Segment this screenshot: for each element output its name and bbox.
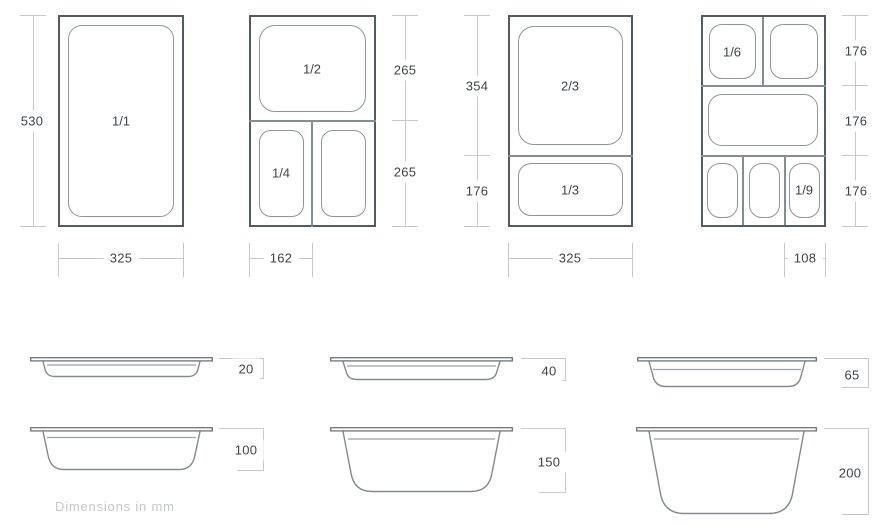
pan-size-label: 1/3	[561, 184, 579, 197]
dimension-tick	[183, 243, 184, 277]
frame-divider	[742, 157, 744, 225]
gastronorm-size-diagram: 1/1 530 325 1/2 1/4 265 265 162	[0, 0, 885, 526]
dimension-label: 325	[104, 248, 139, 269]
dimension-tick	[842, 226, 868, 227]
dimension-tick	[464, 155, 490, 156]
pan-outline-1-9b	[749, 163, 780, 218]
dimension-label: 265	[388, 60, 423, 81]
dimension-tick	[842, 15, 868, 16]
dimension-tick	[784, 243, 785, 277]
dimension-tick	[842, 85, 868, 86]
pan-profile	[330, 427, 513, 494]
dimension-label: 176	[839, 41, 874, 62]
dimension-tick	[508, 243, 509, 277]
depth-label: 100	[229, 440, 264, 461]
dimension-tick	[392, 15, 418, 16]
pan-outline-1-3-horizontal	[708, 94, 818, 146]
dimension-line	[405, 15, 406, 227]
dimension-tick	[464, 226, 490, 227]
depth-label: 150	[532, 452, 567, 473]
units-note: Dimensions in mm	[55, 499, 175, 514]
dimension-label: 176	[839, 111, 874, 132]
dimension-line	[263, 358, 264, 379]
dimension-label: 530	[15, 111, 50, 132]
dimension-line	[521, 358, 565, 359]
pan-size-label: 1/4	[272, 167, 290, 180]
dimension-tick	[249, 243, 250, 277]
depth-label: 200	[833, 463, 868, 484]
dimension-tick	[539, 492, 565, 493]
pan-outline-1-6b	[770, 24, 818, 79]
dimension-tick	[464, 15, 490, 16]
dimension-tick	[842, 514, 868, 515]
pan-profile	[637, 357, 817, 389]
frame-divider	[762, 17, 764, 85]
pan-profile	[636, 427, 817, 516]
dimension-line	[824, 358, 868, 359]
dimension-line	[824, 428, 868, 429]
frame-divider	[701, 85, 826, 87]
dimension-tick	[312, 243, 313, 277]
dimension-tick	[842, 387, 868, 388]
dimension-label: 325	[553, 248, 588, 269]
dimension-tick	[842, 155, 868, 156]
frame-divider	[311, 121, 313, 227]
dimension-tick	[825, 243, 826, 277]
depth-label: 40	[535, 361, 562, 382]
dimension-line	[219, 428, 263, 429]
depth-label: 65	[838, 365, 865, 386]
frame-divider	[701, 155, 826, 157]
depth-label: 20	[232, 359, 259, 380]
dimension-tick	[392, 120, 418, 121]
dimension-label: 176	[460, 181, 495, 202]
pan-size-label: 1/6	[723, 46, 741, 59]
pan-outline-1-4b	[321, 130, 366, 217]
dimension-tick	[20, 226, 46, 227]
frame-divider	[784, 157, 786, 225]
pan-size-label: 2/3	[561, 80, 579, 93]
dimension-label: 162	[264, 248, 299, 269]
dimension-tick	[632, 243, 633, 277]
dimension-tick	[58, 243, 59, 277]
frame-divider	[508, 155, 633, 157]
dimension-tick	[237, 470, 263, 471]
dimension-label: 108	[788, 248, 823, 269]
dimension-line	[521, 428, 565, 429]
dimension-label: 354	[460, 76, 495, 97]
pan-profile	[30, 427, 213, 472]
pan-profile	[30, 357, 213, 379]
dimension-label: 265	[388, 162, 423, 183]
pan-size-label: 1/2	[303, 63, 321, 76]
dimension-tick	[20, 15, 46, 16]
pan-outline-1-9	[707, 163, 738, 218]
dimension-label: 176	[839, 181, 874, 202]
pan-size-label: 1/9	[795, 184, 813, 197]
dimension-line	[565, 358, 566, 381]
pan-size-label: 1/1	[112, 115, 130, 128]
pan-profile	[330, 357, 513, 382]
dimension-line	[868, 428, 869, 515]
dimension-line	[868, 358, 869, 388]
dimension-tick	[392, 226, 418, 227]
